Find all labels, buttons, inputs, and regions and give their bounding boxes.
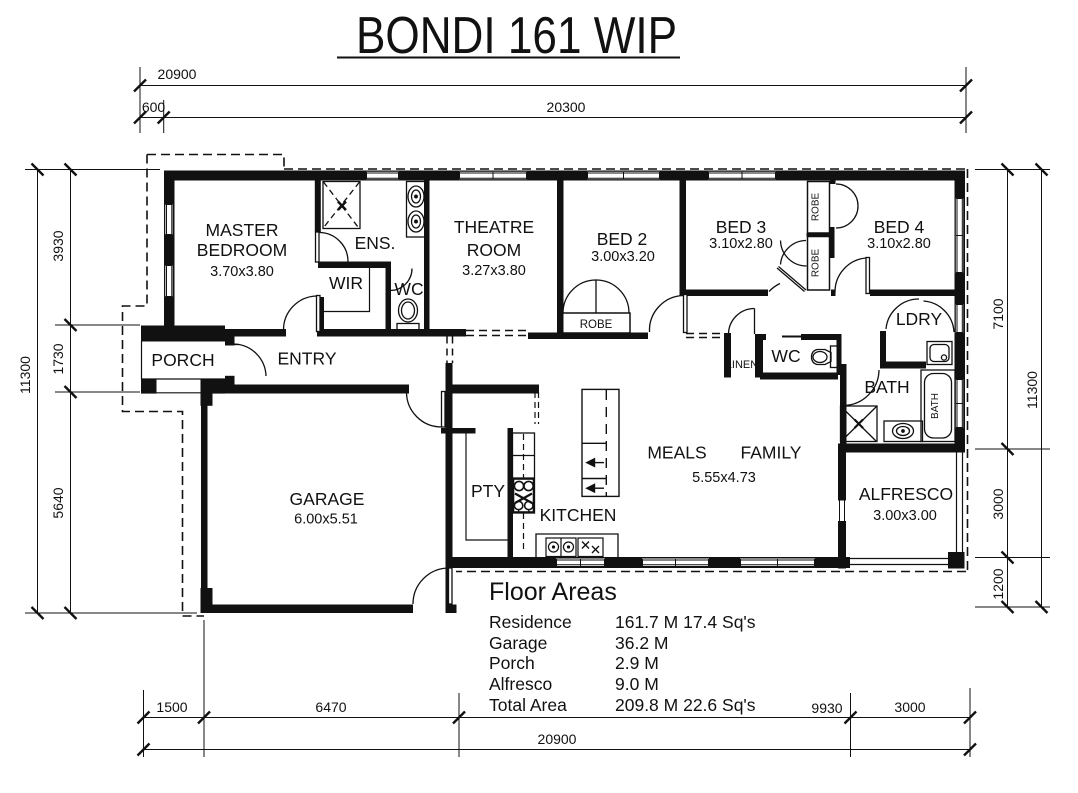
svg-text:KITCHEN: KITCHEN	[540, 505, 617, 525]
svg-text:Total Area: Total Area	[489, 695, 567, 715]
svg-text:BED 3: BED 3	[716, 217, 767, 237]
svg-text:3.70x3.80: 3.70x3.80	[210, 264, 274, 280]
svg-text:ROBE: ROBE	[811, 193, 822, 222]
svg-text:BED 2: BED 2	[597, 229, 648, 249]
svg-text:ALFRESCO: ALFRESCO	[859, 484, 953, 504]
svg-text:6.00x5.51: 6.00x5.51	[294, 512, 358, 528]
svg-text:ENTRY: ENTRY	[278, 349, 337, 369]
svg-text:3000: 3000	[990, 488, 1006, 519]
svg-text:1200: 1200	[990, 568, 1006, 599]
svg-text:161.7 M 17.4 Sq's: 161.7 M 17.4 Sq's	[615, 612, 756, 632]
svg-text:WC: WC	[394, 279, 423, 299]
svg-text:ROBE: ROBE	[811, 249, 822, 278]
svg-text:Floor Areas: Floor Areas	[489, 578, 617, 606]
svg-text:BONDI 161 WIP: BONDI 161 WIP	[356, 7, 677, 65]
svg-text:3.10x2.80: 3.10x2.80	[709, 236, 773, 252]
svg-text:1500: 1500	[156, 699, 187, 715]
svg-text:20300: 20300	[547, 99, 586, 115]
svg-text:3930: 3930	[50, 230, 66, 261]
svg-text:2.9 M: 2.9 M	[615, 653, 659, 673]
svg-text:PORCH: PORCH	[151, 350, 214, 370]
svg-text:1730: 1730	[50, 343, 66, 374]
svg-text:7100: 7100	[990, 298, 1006, 329]
svg-text:11300: 11300	[1024, 371, 1040, 409]
svg-text:600: 600	[142, 99, 166, 115]
svg-text:3.10x2.80: 3.10x2.80	[867, 236, 931, 252]
svg-text:9930: 9930	[811, 700, 842, 716]
svg-text:BATH: BATH	[864, 377, 909, 397]
svg-text:6470: 6470	[315, 699, 346, 715]
svg-text:BED 4: BED 4	[874, 217, 925, 237]
svg-text:FAMILY: FAMILY	[741, 443, 802, 463]
svg-text:THEATRE: THEATRE	[454, 217, 534, 237]
svg-text:GARAGE: GARAGE	[290, 489, 365, 509]
svg-text:3.27x3.80: 3.27x3.80	[462, 263, 526, 279]
svg-text:5640: 5640	[50, 487, 66, 518]
svg-text:MEALS: MEALS	[647, 443, 706, 463]
svg-text:20900: 20900	[158, 66, 197, 82]
svg-text:3000: 3000	[894, 699, 925, 715]
svg-text:ROBE: ROBE	[580, 319, 613, 331]
svg-text:BATH: BATH	[930, 393, 941, 419]
svg-text:5.55x4.73: 5.55x4.73	[692, 470, 756, 486]
svg-text:3.00x3.00: 3.00x3.00	[873, 508, 937, 524]
svg-text:ROOM: ROOM	[467, 240, 521, 260]
svg-text:LDRY: LDRY	[896, 309, 943, 329]
svg-text:3.00x3.20: 3.00x3.20	[591, 249, 655, 265]
svg-text:11300: 11300	[17, 356, 33, 394]
svg-text:Residence: Residence	[489, 612, 572, 632]
svg-text:Porch: Porch	[489, 653, 535, 673]
svg-text:PTY: PTY	[471, 481, 505, 501]
svg-text:Garage: Garage	[489, 633, 547, 653]
svg-text:9.0 M: 9.0 M	[615, 674, 659, 694]
svg-text:LINEN: LINEN	[726, 359, 758, 371]
svg-text:BEDROOM: BEDROOM	[197, 240, 287, 260]
svg-text:36.2 M: 36.2 M	[615, 633, 669, 653]
svg-text:Alfresco: Alfresco	[489, 674, 552, 694]
svg-text:WC: WC	[771, 346, 800, 366]
svg-text:20900: 20900	[538, 731, 577, 747]
svg-text:ENS.: ENS.	[355, 233, 396, 253]
svg-text:209.8 M 22.6 Sq's: 209.8 M 22.6 Sq's	[615, 695, 756, 715]
svg-text:WIR: WIR	[329, 273, 363, 293]
svg-text:MASTER: MASTER	[206, 220, 279, 240]
